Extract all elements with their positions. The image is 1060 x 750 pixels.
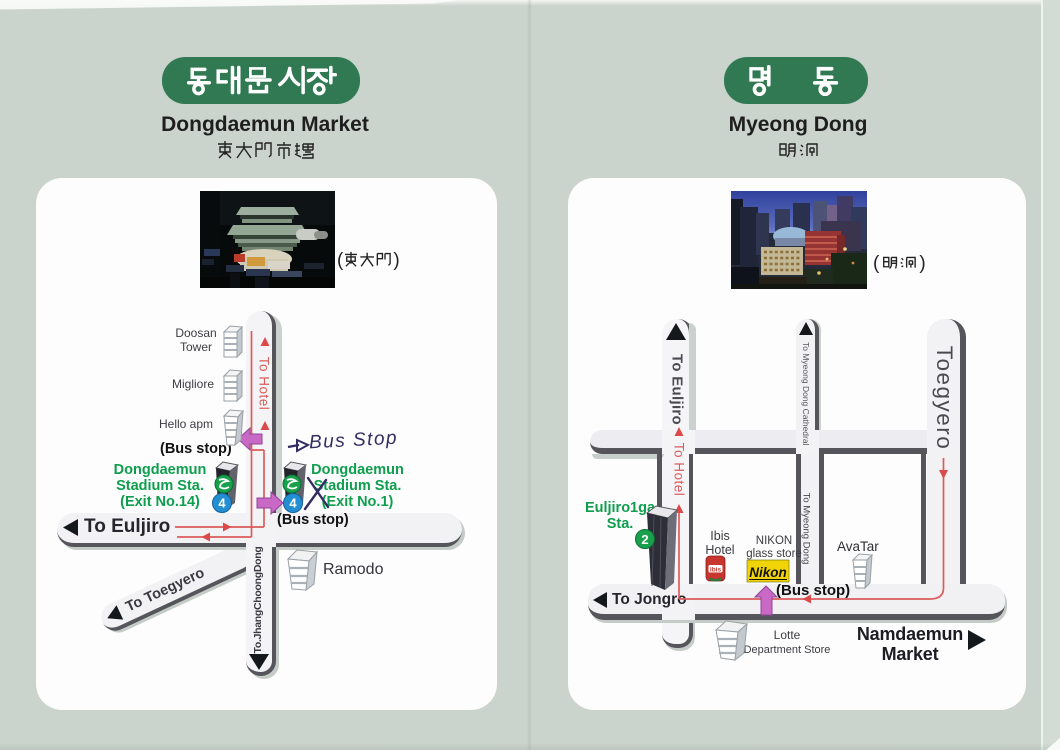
svg-text:4: 4: [218, 496, 226, 511]
svg-text:ibis: ibis: [710, 567, 722, 574]
svg-text:Nikon: Nikon: [749, 565, 787, 580]
svg-text:2: 2: [641, 532, 648, 547]
svg-text:4: 4: [289, 496, 297, 511]
